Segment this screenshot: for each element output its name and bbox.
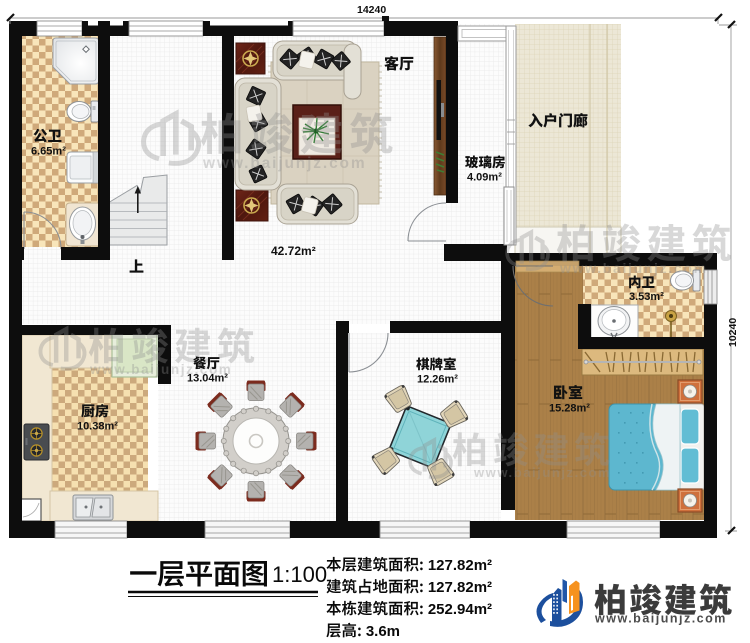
svg-text:www.baijunjz.com: www.baijunjz.com [473,465,611,480]
svg-text:13.04m²: 13.04m² [187,373,228,385]
svg-text:252.94m²: 252.94m² [428,601,492,618]
svg-text:15.28m²: 15.28m² [549,403,590,415]
svg-text:www.baijunjz.com: www.baijunjz.com [202,155,367,172]
svg-text:6.65m²: 6.65m² [31,146,66,158]
svg-text:10240: 10240 [727,318,739,347]
svg-text:1:100: 1:100 [272,562,327,587]
svg-text:www.baijunjz.com: www.baijunjz.com [594,612,727,626]
svg-text:42.72m²: 42.72m² [271,244,316,258]
svg-text:3.6m: 3.6m [366,623,400,640]
svg-text:14240: 14240 [357,4,386,16]
svg-text:127.82m²: 127.82m² [428,579,492,596]
svg-text:12.26m²: 12.26m² [417,374,458,386]
svg-text:4.09m²: 4.09m² [467,172,502,184]
svg-text:127.82m²: 127.82m² [428,557,492,574]
svg-text:10.38m²: 10.38m² [77,421,118,433]
svg-text:www.baijunjz.com: www.baijunjz.com [559,260,708,276]
svg-text:3.53m²: 3.53m² [629,291,664,303]
